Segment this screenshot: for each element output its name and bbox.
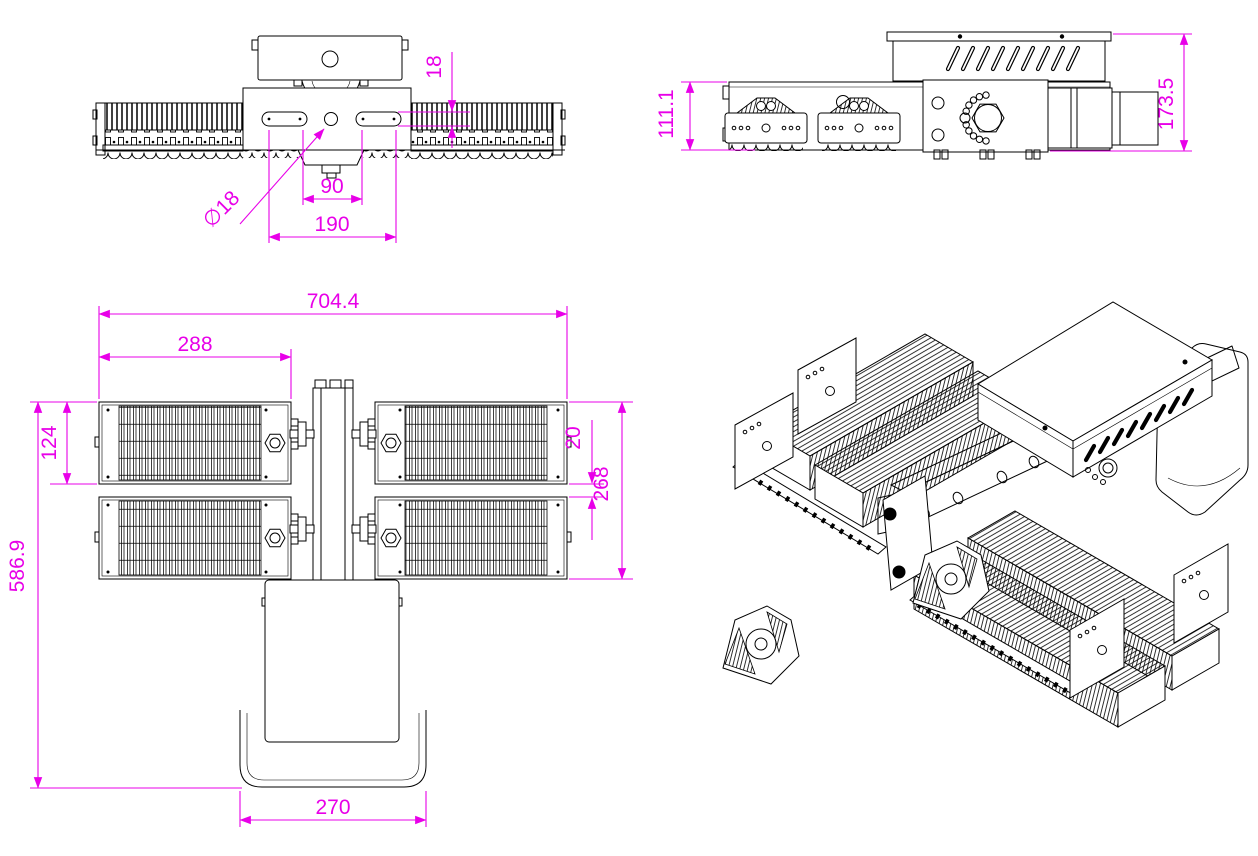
- hinge: [290, 419, 314, 449]
- technical-drawing-canvas: 18 ∅18 90 190: [0, 0, 1258, 856]
- dim-hole-diameter: ∅18: [199, 187, 245, 233]
- dim-bracket-width: 270: [315, 796, 350, 819]
- side-view-arm: [1048, 88, 1158, 148]
- front-view: 704.4 288 124 586.9 20 268 270: [6, 290, 633, 827]
- dim-outer-span: 190: [314, 213, 349, 236]
- front-view-column: [313, 380, 353, 580]
- top-view-driver-box: [252, 36, 408, 80]
- hinge: [352, 419, 376, 449]
- top-view: 18 ∅18 90 190: [93, 36, 565, 243]
- hinge: [290, 514, 314, 544]
- side-view-angle-adjuster: [923, 80, 1048, 152]
- dim-overall-height: 173.5: [1155, 78, 1178, 131]
- dim-modules-span: 268: [590, 466, 613, 501]
- iso-tilt-clamp: [723, 606, 799, 684]
- front-view-panel-lower-right: [375, 497, 571, 579]
- front-view-panel-upper-right: [375, 402, 571, 484]
- top-view-right-heatsink: [411, 103, 565, 159]
- dim-module-width: 288: [177, 333, 212, 356]
- isometric-view: [723, 302, 1248, 727]
- hinge: [352, 514, 376, 544]
- top-view-left-heatsink: [93, 103, 243, 159]
- dim-inner-span: 90: [320, 175, 343, 198]
- lid-screw: [1060, 34, 1064, 38]
- dim-module-height: 124: [38, 425, 61, 460]
- dim-module-gap: 20: [562, 426, 585, 449]
- dim-overall-height: 586.9: [6, 540, 29, 593]
- front-view-driver-box: [262, 580, 402, 742]
- dim-body-height: 111.1: [655, 89, 678, 138]
- side-view-driver-box: [887, 32, 1111, 81]
- dim-slot-height: 18: [423, 55, 446, 78]
- front-view-panel-upper-left: [95, 402, 291, 484]
- side-view: 111.1 173.5: [655, 32, 1192, 159]
- lid-screw: [958, 34, 962, 38]
- drawing-sheet: 18 ∅18 90 190: [0, 0, 1258, 856]
- dim-overall-width: 704.4: [307, 290, 360, 313]
- front-view-panel-lower-left: [95, 497, 291, 579]
